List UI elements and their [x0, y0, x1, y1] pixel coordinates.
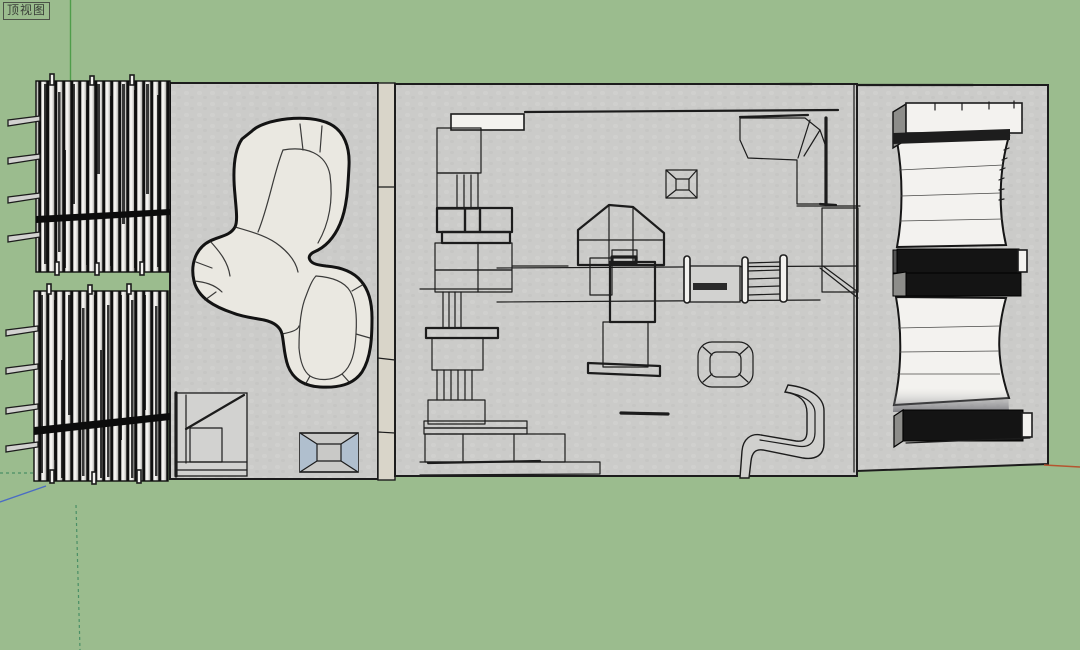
corner-structure[interactable]	[176, 393, 247, 476]
bold-mark	[621, 413, 668, 414]
tower-black-bands[interactable]	[893, 249, 1027, 296]
scene-canvas[interactable]	[0, 0, 1080, 650]
floor-divider-strip[interactable]	[378, 83, 395, 480]
modeler-viewport[interactable]: 顶视图	[0, 0, 1080, 650]
skylight-frame[interactable]	[300, 433, 358, 472]
view-name-label: 顶视图	[3, 2, 50, 20]
louver-side-fins	[6, 326, 38, 452]
blue-axis-line	[0, 486, 46, 502]
louver-screen-top[interactable]	[8, 74, 170, 275]
tower-shadow	[893, 388, 1009, 412]
tower-bottom-bar[interactable]	[894, 410, 1032, 447]
green-axis-dashed	[76, 505, 80, 650]
view-name-text: 顶视图	[7, 3, 46, 17]
red-axis-line	[1044, 465, 1080, 467]
louver-screen-bottom[interactable]	[6, 284, 170, 484]
louver-side-fins	[8, 116, 40, 242]
